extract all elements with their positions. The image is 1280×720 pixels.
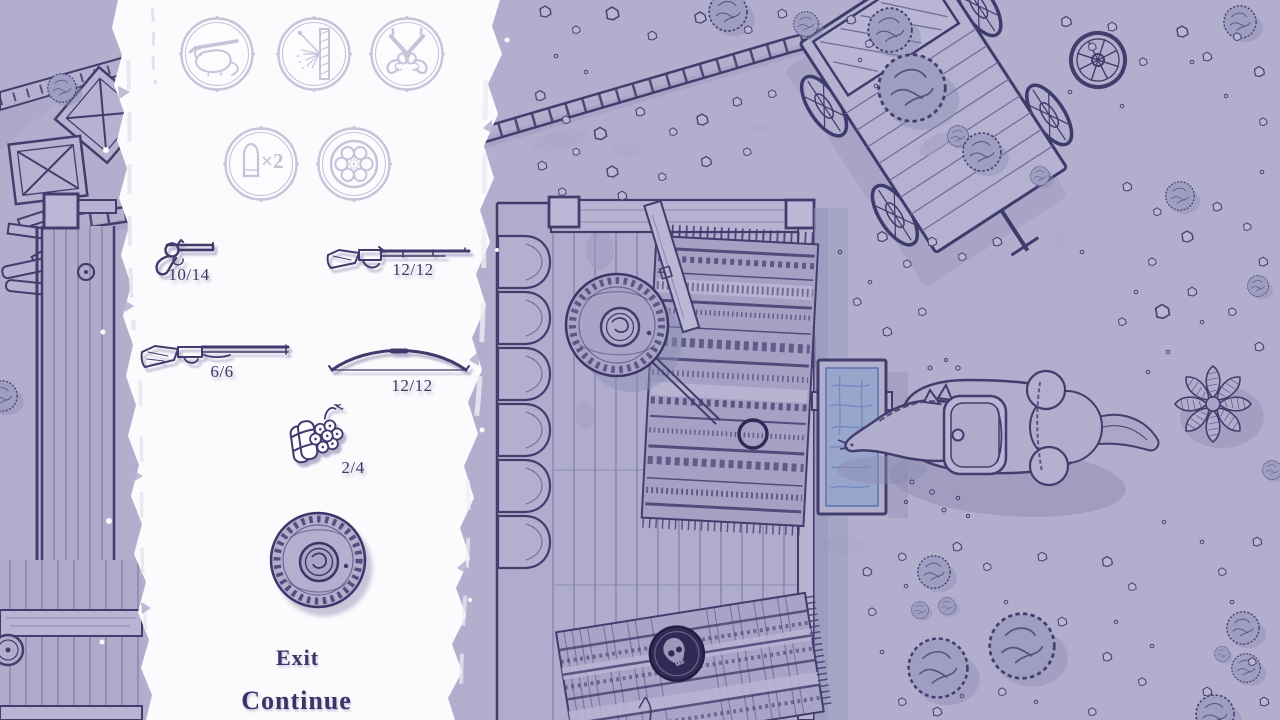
weapon-shotgun[interactable]: 6/6 bbox=[140, 336, 295, 384]
perk-badge-pack-rat[interactable] bbox=[178, 15, 256, 93]
weapon-bow[interactable]: 12/12 bbox=[328, 342, 473, 392]
bow-icon bbox=[328, 342, 470, 378]
continue-button[interactable]: Continue bbox=[234, 686, 359, 716]
perk-badge-double-ammo[interactable]: ×2 bbox=[222, 125, 300, 203]
ammo-count: 10/14 bbox=[159, 265, 219, 285]
sombrero-icon bbox=[266, 506, 370, 614]
rat-with-rifle-icon bbox=[178, 15, 256, 93]
perk-badge-penetration[interactable] bbox=[275, 15, 353, 93]
hat-sombrero[interactable] bbox=[266, 506, 370, 614]
weapon-dynamite[interactable]: 2/4 bbox=[288, 404, 366, 480]
perk-badge-extra-cylinder[interactable] bbox=[315, 125, 393, 203]
bullet-through-plank-icon bbox=[275, 15, 353, 93]
ammo-count: 2/4 bbox=[338, 458, 368, 478]
exit-button[interactable]: Exit bbox=[255, 645, 340, 671]
ammo-count: 12/12 bbox=[382, 376, 442, 396]
crossed-revolvers-icon bbox=[368, 15, 446, 93]
ammo-count: 6/6 bbox=[192, 362, 252, 382]
weapon-revolver[interactable]: 10/14 bbox=[145, 236, 225, 286]
weapon-rifle[interactable]: 12/12 bbox=[325, 238, 475, 286]
loadout-panel: ×2 10/14 bbox=[0, 0, 1280, 720]
double-ammo-label: ×2 bbox=[261, 149, 283, 174]
perk-badge-dual-wield[interactable] bbox=[368, 15, 446, 93]
revolver-cylinder-icon bbox=[315, 125, 393, 203]
ammo-count: 12/12 bbox=[383, 260, 443, 280]
game-screen: ×2 10/14 bbox=[0, 0, 1280, 720]
